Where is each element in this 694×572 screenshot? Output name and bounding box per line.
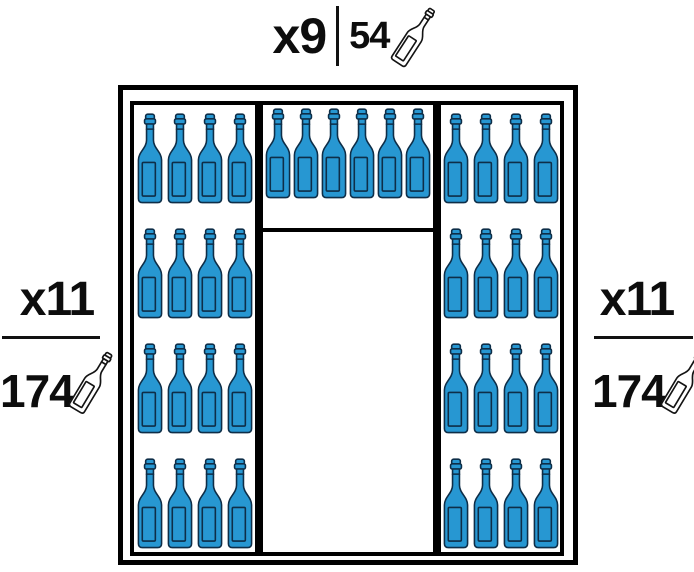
right-count-text: 174 — [592, 368, 666, 414]
wine-bottle-icon — [533, 343, 559, 435]
bottle-row — [134, 343, 255, 435]
wine-bottle-outline-icon — [668, 343, 694, 417]
wine-bottle-icon — [197, 113, 223, 205]
top-multiplier-text: x9 — [273, 11, 327, 61]
wine-bottle-icon — [443, 228, 469, 320]
wine-bottle-icon — [167, 113, 193, 205]
wine-bottle-outline-icon — [76, 343, 114, 417]
top-count-text: 54 — [349, 17, 389, 55]
wine-bottle-icon — [167, 228, 193, 320]
wine-bottle-icon — [473, 343, 499, 435]
wine-bottle-icon — [227, 113, 253, 205]
wine-bottle-icon — [227, 228, 253, 320]
wine-cellar-diagram: x9 54 x11 174 x11 174 — [0, 0, 694, 572]
middle-column-bottle-grid — [263, 105, 433, 228]
wine-bottle-icon — [167, 458, 193, 550]
left-capacity-label: x11 174 — [0, 276, 114, 417]
left-count-text: 174 — [0, 368, 74, 414]
wine-bottle-icon — [167, 343, 193, 435]
left-column-bottle-grid — [134, 105, 255, 552]
right-capacity-label: x11 174 — [580, 276, 694, 417]
bottle-row — [441, 458, 560, 550]
wine-bottle-icon — [473, 228, 499, 320]
wine-bottle-icon — [321, 108, 347, 200]
wine-bottle-icon — [377, 108, 403, 200]
wine-bottle-icon — [197, 458, 223, 550]
wine-bottle-icon — [503, 458, 529, 550]
wine-bottle-icon — [349, 108, 375, 200]
vertical-divider-line — [336, 6, 339, 66]
top-capacity-label: x9 54 — [250, 0, 472, 72]
right-multiplier-text: x11 — [580, 276, 694, 324]
wine-bottle-icon — [137, 343, 163, 435]
wine-bottle-icon — [137, 228, 163, 320]
bottle-row — [134, 458, 255, 550]
wine-bottle-icon — [197, 343, 223, 435]
wine-bottle-icon — [137, 458, 163, 550]
wine-bottle-icon — [389, 4, 441, 70]
bottle-row — [134, 228, 255, 320]
wine-bottle-icon — [443, 113, 469, 205]
wine-bottle-icon — [503, 113, 529, 205]
wine-bottle-icon — [227, 458, 253, 550]
horizontal-divider-line — [2, 336, 100, 339]
wine-bottle-icon — [227, 343, 253, 435]
wine-bottle-icon — [197, 228, 223, 320]
wine-bottle-icon — [443, 343, 469, 435]
wine-bottle-icon — [503, 228, 529, 320]
wine-bottle-icon — [503, 343, 529, 435]
wine-bottle-icon — [533, 228, 559, 320]
right-count-row: 174 — [580, 365, 694, 417]
wine-bottle-icon — [265, 108, 291, 200]
wine-bottle-icon — [533, 458, 559, 550]
bottle-row — [263, 108, 433, 200]
wine-bottle-icon — [473, 113, 499, 205]
middle-shelf-divider-line — [259, 228, 437, 232]
wine-bottle-icon — [533, 113, 559, 205]
wine-bottle-icon — [443, 458, 469, 550]
left-count-row: 174 — [0, 365, 114, 417]
wine-bottle-outline-icon — [399, 2, 449, 70]
wine-bottle-icon — [405, 108, 431, 200]
left-multiplier-text: x11 — [0, 276, 114, 324]
bottle-row — [441, 113, 560, 205]
bottle-row — [441, 228, 560, 320]
right-column-bottle-grid — [441, 105, 560, 552]
wine-bottle-icon — [473, 458, 499, 550]
bottle-row — [441, 343, 560, 435]
bottle-row — [134, 113, 255, 205]
wine-bottle-icon — [293, 108, 319, 200]
wine-bottle-icon — [137, 113, 163, 205]
horizontal-divider-line — [594, 336, 693, 339]
